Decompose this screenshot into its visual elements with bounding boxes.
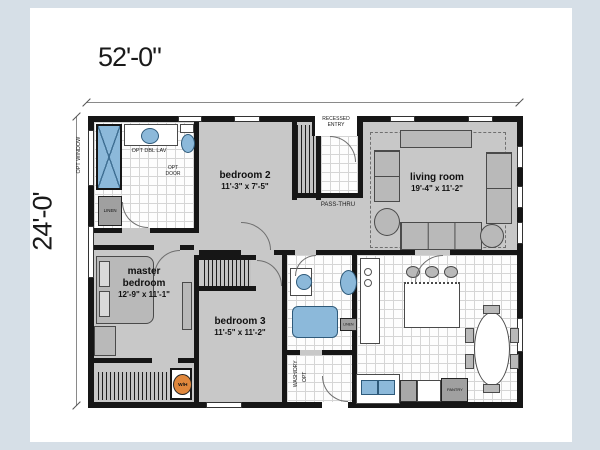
bedroom3-label: bedroom 3 11'-5" x 11'-2" <box>198 316 282 338</box>
dresser <box>94 326 116 356</box>
side-table <box>480 224 504 248</box>
linen-label: LINEN <box>343 322 353 326</box>
window <box>517 146 523 168</box>
dining-chair <box>483 305 500 314</box>
kitchen-sink <box>378 380 395 395</box>
water-heater: W/H <box>173 374 192 395</box>
wall <box>316 193 363 198</box>
counter-section <box>417 380 441 402</box>
wall <box>357 250 415 255</box>
window <box>517 186 523 208</box>
loveseat <box>486 152 512 224</box>
living-room-size: 19'-4" x 11'-2" <box>392 184 482 194</box>
wall <box>178 358 194 363</box>
wall <box>194 122 199 233</box>
width-dimension-label: 52'-0" <box>98 42 161 73</box>
recessed-entry-label-line2: ENTRY <box>315 123 357 129</box>
window <box>178 116 202 122</box>
master-bedroom-name-line1: master <box>104 266 184 278</box>
window-opt <box>88 130 94 186</box>
pantry-label: PANTRY <box>447 388 463 393</box>
toilet-tank <box>180 124 194 133</box>
wall <box>282 250 287 402</box>
dining-chair <box>510 328 519 343</box>
cooktop-burner <box>364 268 372 276</box>
height-dimension-label: 24'-0' <box>28 183 59 261</box>
wall <box>352 255 357 355</box>
lavatory-sink <box>141 128 159 144</box>
wall <box>450 250 517 255</box>
linen-label: LINEN <box>104 209 117 214</box>
floor-plan-page: 52'-0" 24'-0' OPT WINDOW <box>0 0 600 450</box>
linen-closet: LINEN <box>340 318 357 331</box>
master-bedroom-name-line2: bedroom <box>104 278 184 290</box>
window <box>390 116 415 122</box>
bedroom3-size: 11'-5" x 11'-2" <box>198 328 282 338</box>
bedroom2-name: bedroom 2 <box>200 170 290 182</box>
wall <box>287 250 295 255</box>
window <box>88 226 94 278</box>
dining-chair <box>465 328 474 343</box>
opt-window-label: OPT WINDOW <box>76 120 82 190</box>
window <box>517 222 523 244</box>
master-bedroom-label: master bedroom 12'-9" x 11'-1" <box>104 266 184 300</box>
recessed-entry: RECESSED ENTRY <box>312 116 360 136</box>
cooktop-burner <box>364 279 372 287</box>
floor-plan: RECESSED ENTRY PASS-THRU LINEN OPT DBL L… <box>88 116 523 408</box>
wall <box>94 358 152 363</box>
living-room-label: living room 19'-4" x 11'-2" <box>392 172 482 194</box>
opt-dbl-lav-label: OPT DBL LAV <box>116 148 182 154</box>
toilet <box>340 270 357 295</box>
closet-hanging-rod <box>98 372 168 400</box>
window <box>468 116 493 122</box>
wall <box>180 245 194 250</box>
wall <box>150 228 199 233</box>
wash-dry-opt-label: OPT <box>303 367 309 387</box>
door-swing <box>241 222 271 250</box>
door-swing <box>257 260 282 286</box>
opt-door-label: OPT DOOR <box>160 166 186 177</box>
round-chair <box>374 208 400 236</box>
counter-section <box>400 380 417 402</box>
bathtub <box>292 306 338 338</box>
shower <box>96 124 122 190</box>
master-bedroom-size: 12'-9" x 11'-1" <box>104 290 184 300</box>
dining-chair <box>510 354 519 369</box>
linen-closet: LINEN <box>98 196 122 226</box>
pantry: PANTRY <box>441 378 468 402</box>
bar-stool <box>444 266 458 278</box>
window <box>234 116 260 122</box>
window <box>206 402 242 408</box>
bedroom3-name: bedroom 3 <box>198 316 282 328</box>
dining-chair <box>465 354 474 369</box>
pass-thru-label: PASS-THRU <box>308 202 368 209</box>
water-heater-label: W/H <box>178 382 187 387</box>
closet-hanging-rod <box>204 260 251 286</box>
tv-console <box>400 130 472 148</box>
toilet <box>181 134 195 153</box>
bedroom2-label: bedroom 2 11'-3" x 7'-5" <box>200 170 290 192</box>
wall <box>94 245 154 250</box>
dining-table <box>474 312 510 386</box>
wall <box>94 228 122 233</box>
sofa <box>400 222 482 250</box>
kitchen-sink <box>361 380 378 395</box>
living-room-name: living room <box>392 172 482 184</box>
bedroom2-size: 11'-3" x 7'-5" <box>200 182 290 192</box>
dining-chair <box>483 384 500 393</box>
kitchen-island <box>404 282 460 328</box>
wall <box>199 286 256 291</box>
wall <box>316 250 357 255</box>
lavatory-sink <box>296 274 312 290</box>
wash-dry-label: WASH/DRY <box>294 351 300 397</box>
rear-door-opening <box>322 402 348 408</box>
width-dimension-line <box>86 102 520 103</box>
